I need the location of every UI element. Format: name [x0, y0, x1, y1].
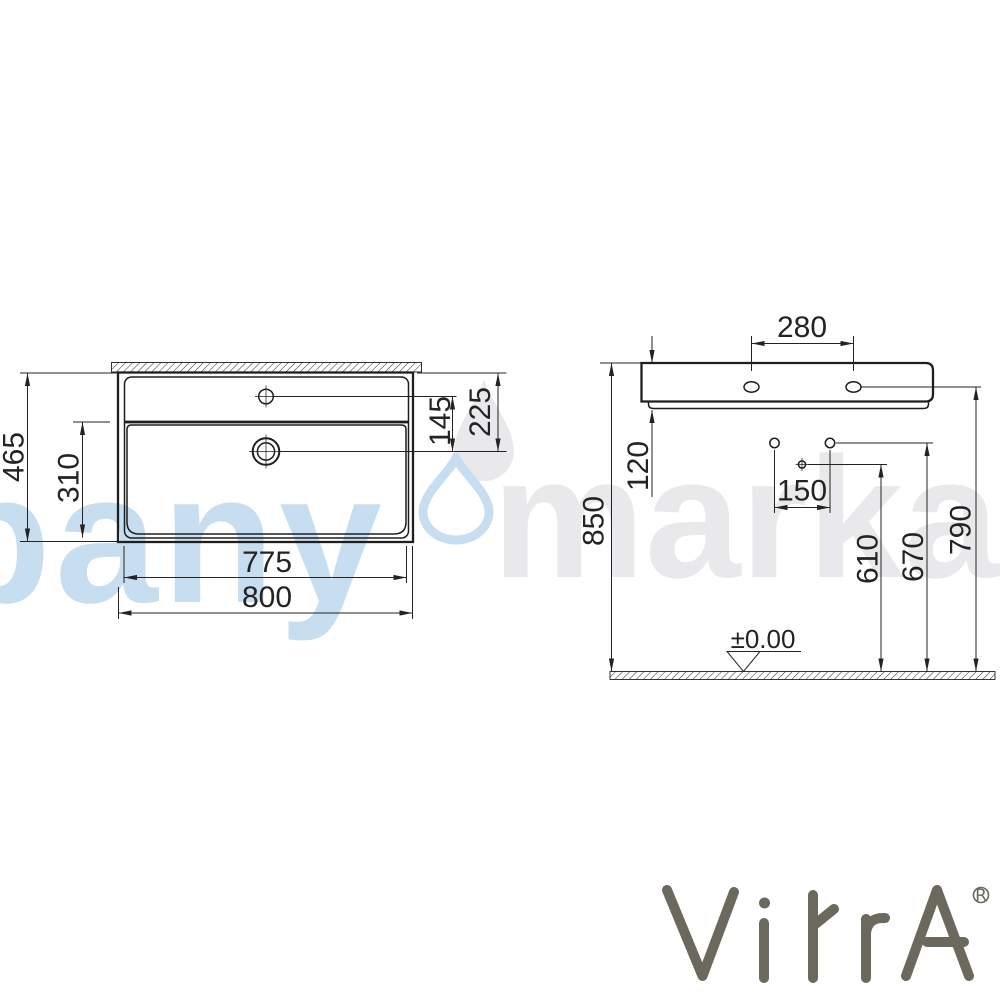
technical-drawing-canvas: bany marka: [0, 0, 1000, 1000]
bracket-height-label: 670: [897, 532, 930, 582]
faucet-to-drain-label: 145: [424, 396, 457, 446]
fixing-hole-spacing-label: 280: [777, 311, 827, 344]
vitra-logo: VitrA R: [653, 878, 998, 993]
fixing-hole-right: [846, 382, 861, 392]
vitra-logo-letters: [667, 890, 969, 978]
overall-width-label: 800: [242, 581, 292, 614]
plan-view: 465 310 145 225 775 800: [0, 363, 507, 620]
wall-hatch-strip: [112, 363, 422, 373]
bracket-hole-spacing-label: 150: [777, 475, 827, 508]
dimension-drawing: 465 310 145 225 775 800: [0, 0, 1000, 1000]
overall-depth-label: 465: [0, 432, 31, 482]
floor-hatch-strip: [610, 672, 995, 680]
fixing-hole-height-label: 790: [945, 505, 978, 555]
bracket-hole-right: [825, 438, 834, 447]
basin-inner-rim: [125, 377, 409, 538]
registered-mark: R: [975, 886, 987, 906]
body-height-label: 120: [622, 441, 655, 491]
bracket-hole-left: [770, 438, 779, 447]
fixing-hole-left: [744, 382, 759, 392]
side-view: 280 850 120 150: [578, 311, 996, 680]
drain-height-label: 610: [852, 534, 885, 584]
basin-side-body: [642, 363, 934, 402]
basin-bowl: [127, 425, 406, 534]
level-triangle-icon: [727, 652, 760, 672]
inner-width-label: 775: [242, 546, 292, 579]
basin-depth-label: 310: [53, 453, 86, 503]
back-to-drain-label: 225: [464, 387, 497, 437]
rim-height-label: 850: [578, 496, 611, 546]
basin-outer-rect: [118, 373, 413, 543]
floor-level-label: ±0.00: [731, 624, 796, 654]
